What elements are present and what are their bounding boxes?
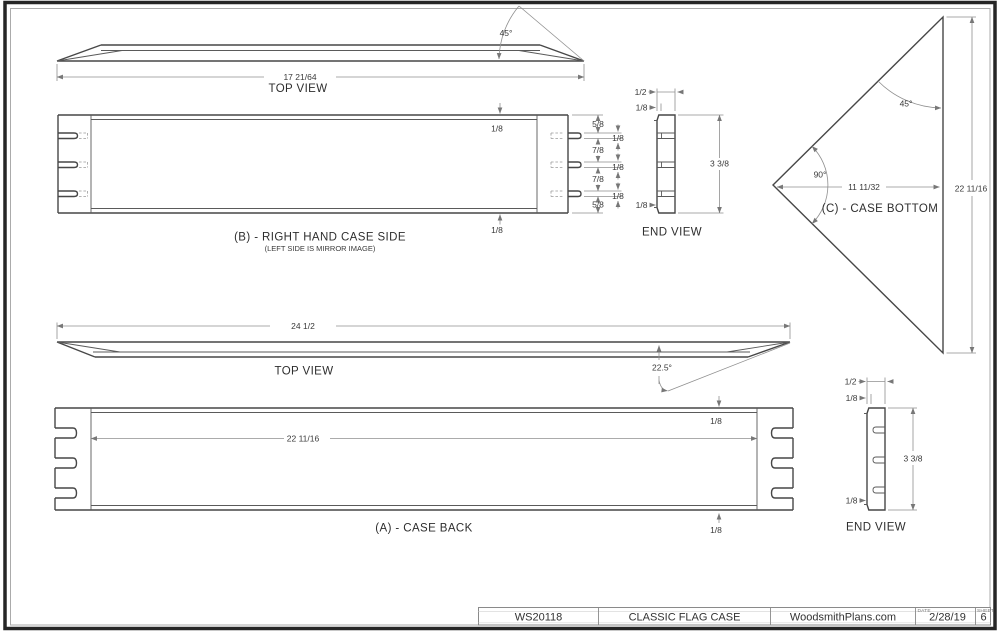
end-view-b-geometry	[654, 115, 675, 213]
end-view-b-width-dim: 1/2	[635, 87, 647, 97]
title-block-plan-title: CLASSIC FLAG CASE	[629, 612, 741, 624]
top-view-a: 24 1/2 22.5° TOP VIEW	[57, 321, 790, 391]
plan-sheet: 17 21/64 45° TOP VIEW	[0, 0, 1000, 635]
end-view-b-lip-bottom-dim: 1/8	[636, 200, 648, 210]
case-side-segment-dim-2: 7/8	[592, 145, 604, 155]
end-view-b-dimensions	[649, 89, 724, 214]
case-side-segment-dim-1: 5/8	[592, 119, 604, 129]
case-back-a: 22 11/16 1/8 1/8 (A) - CASE BACK	[55, 396, 793, 535]
case-bottom-height-dim: 22 11/16	[955, 184, 988, 194]
case-side-top-lip-dim: 1/8	[491, 124, 503, 134]
end-view-b-outline	[657, 115, 675, 213]
title-block-date-value: 2/28/19	[929, 612, 966, 624]
case-back-a-dimensions	[91, 396, 757, 523]
case-side-segment-dim-3: 7/8	[592, 174, 604, 184]
end-view-a: 1/2 1/8 3 3/8 1/8 END VIEW	[845, 377, 923, 534]
top-view-b-title: TOP VIEW	[268, 83, 327, 95]
end-view-a-lip-top-dim: 1/8	[846, 393, 858, 403]
end-view-a-outline	[867, 408, 885, 510]
case-bottom-c-title: (C) - CASE BOTTOM	[822, 203, 938, 215]
top-view-a-geometry	[57, 342, 790, 357]
top-view-a-angle-dim: 22.5°	[652, 363, 672, 373]
end-view-a-title: END VIEW	[846, 522, 906, 534]
case-back-a-geometry	[55, 408, 793, 510]
title-block-plan-number: WS20118	[515, 612, 563, 624]
inner-border	[11, 9, 991, 626]
end-view-b: 1/2 1/8 3 3/8 1/8 END VIEW	[635, 87, 730, 239]
case-bottom-angle-left-dim: 90°	[814, 170, 827, 180]
end-view-a-height-dim: 3 3/8	[904, 454, 923, 464]
end-view-a-lip-bottom-dim: 1/8	[846, 496, 858, 506]
end-view-b-title: END VIEW	[642, 227, 702, 239]
sheet-border	[5, 3, 995, 629]
case-side-slot-dim-2: 1/8	[612, 162, 624, 172]
end-view-a-width-dim: 1/2	[845, 377, 857, 387]
case-side-bottom-lip-dim: 1/8	[491, 225, 503, 235]
end-view-b-height-dim: 3 3/8	[710, 159, 729, 169]
top-view-a-title: TOP VIEW	[274, 366, 333, 378]
drawing-sheet-svg: 17 21/64 45° TOP VIEW	[0, 0, 1000, 635]
case-side-slot-dim-3: 1/8	[612, 191, 624, 201]
case-bottom-angle-top-dim: 45°	[900, 99, 913, 109]
case-back-a-title: (A) - CASE BACK	[375, 523, 472, 535]
case-back-lip-bottom-dim: 1/8	[710, 525, 722, 535]
end-view-b-lip-top-dim: 1/8	[636, 103, 648, 113]
case-bottom-width-dim: 11 11/32	[848, 182, 880, 192]
case-back-lip-top-dim: 1/8	[710, 416, 722, 426]
top-view-b-dimensions	[57, 6, 584, 81]
title-block: WS20118 CLASSIC FLAG CASE WoodsmithPlans…	[479, 608, 995, 626]
top-view-b-geometry	[57, 45, 584, 61]
top-view-b-angle-dim: 45°	[500, 28, 513, 38]
case-back-outline	[55, 408, 793, 510]
top-view-b: 17 21/64 45° TOP VIEW	[57, 6, 584, 95]
case-side-segment-dim-4: 5/8	[592, 200, 604, 210]
end-view-a-geometry	[864, 408, 885, 510]
case-side-b: 1/8 1/8 5/8 7/8 7/8 5/8 1/8 1/8 1/8 (B) …	[58, 103, 624, 253]
case-bottom-c: 22 11/16 11 11/32 45° 90° (C) - CASE BOT…	[773, 17, 987, 353]
title-block-website: WoodsmithPlans.com	[790, 612, 896, 624]
case-back-width-dim: 22 11/16	[287, 434, 320, 444]
title-block-sheet-value: 6	[980, 612, 986, 624]
top-view-a-length-dim: 24 1/2	[291, 321, 315, 331]
outer-border	[5, 3, 995, 629]
top-view-b-length-dim: 17 21/64	[283, 72, 316, 82]
case-side-b-title: (B) - RIGHT HAND CASE SIDE	[234, 232, 406, 244]
case-side-slot-dim-1: 1/8	[612, 133, 624, 143]
case-side-b-subtitle: (LEFT SIDE IS MIRROR IMAGE)	[265, 244, 376, 253]
